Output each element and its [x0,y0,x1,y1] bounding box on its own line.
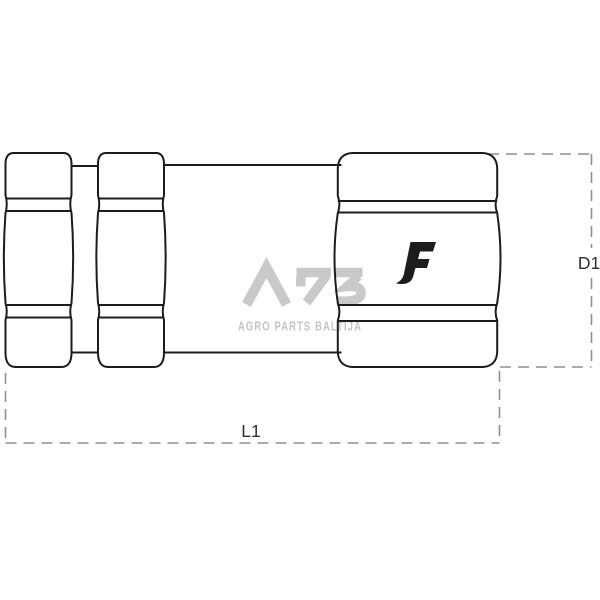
diameter-dimension-label: D1 [578,253,600,273]
hex-nut-left [4,153,73,367]
apb-logo-letter-p [297,273,332,303]
faster-f-logo [396,242,436,284]
dimension-annotations: L1 D1 [6,154,600,443]
hex-nut-middle [96,153,165,367]
valve-drawing [4,153,501,367]
length-dimension-label: L1 [241,421,260,441]
apb-logo-letter-a [247,268,287,305]
apb-logo-letter-b [335,273,363,302]
watermark: AGRO PARTS BALTIJA [238,268,363,334]
apb-logo [247,268,363,305]
hex-body-right [335,153,501,367]
technical-drawing-page: AGRO PARTS BALTIJA L1 D1 [0,0,600,600]
hydraulic-fitting-diagram: AGRO PARTS BALTIJA L1 D1 [0,0,600,600]
